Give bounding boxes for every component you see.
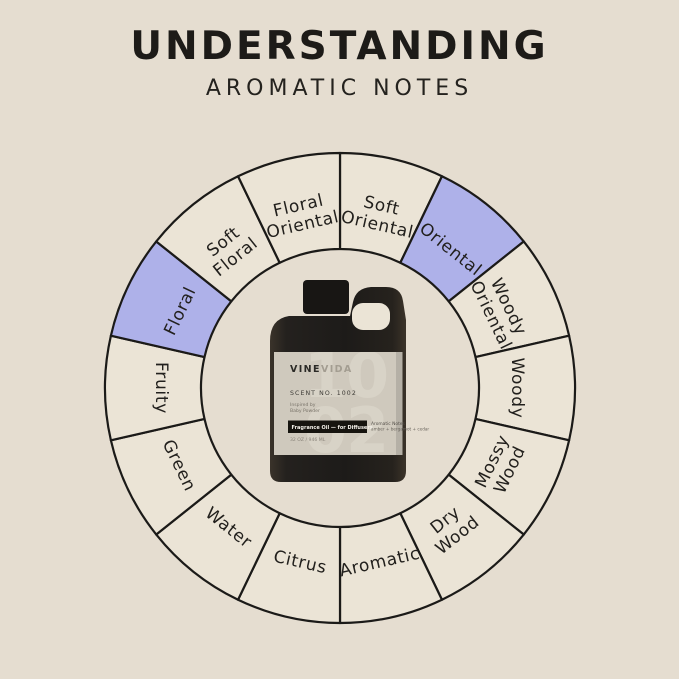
size-text: 32 OZ / 946 ML [290,437,326,443]
aromatic-notes-value: amber + bergamot + cedar [371,427,429,432]
bottle-handle-hole [352,303,390,330]
bottle-watermark: 10 02 [304,339,388,467]
infographic-page: UNDERSTANDING AROMATIC NOTES SoftOrienta… [0,0,679,679]
product-bottle: 10 02 VINEVIDA SCENT NO. 1002 Inspired b… [270,280,429,482]
bottle-cap [303,280,349,314]
scent-number-text: SCENT NO. 1002 [290,390,357,397]
page-title: UNDERSTANDING [0,26,679,69]
fragrance-wheel: SoftOrientalOrientalWoodyOrientalWoodyMo… [0,0,679,679]
band-text: Fragrance Oil — for Diffusers [292,425,373,431]
inspired-by-label: Inspired by [290,402,316,408]
bottle-label-shadow [396,352,403,455]
brand-text: VINEVIDA [290,364,353,375]
page-header: UNDERSTANDING AROMATIC NOTES [0,0,679,101]
page-subtitle: AROMATIC NOTES [0,77,679,101]
inspired-by-value: Baby Powder [290,408,320,414]
wheel-segment-label: Fruity [151,362,171,414]
wheel-segment-label: Woody [507,358,527,419]
